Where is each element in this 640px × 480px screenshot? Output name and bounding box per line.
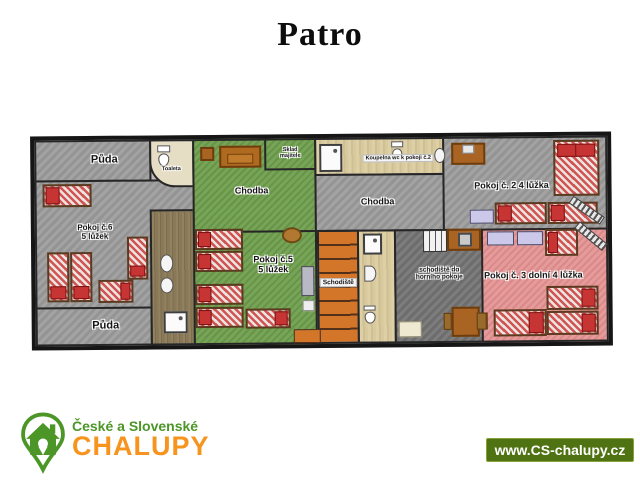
label-puda-bottom: Půda bbox=[92, 319, 119, 332]
chair-icon bbox=[444, 313, 452, 330]
mirror-icon bbox=[160, 254, 173, 272]
sofa-seat bbox=[227, 154, 254, 164]
page: { "title": "Patro", "plan": { "labels": … bbox=[0, 0, 640, 480]
page-title: Patro bbox=[0, 16, 640, 54]
label-pokoj-3: Pokoj č. 3 dolní 4 lůžka bbox=[484, 270, 583, 281]
label-schodiste-horni: schodiště do horního pokoje bbox=[416, 266, 463, 281]
double-bed bbox=[553, 140, 599, 196]
logo-text: České a Slovenské CHALUPY bbox=[72, 418, 210, 462]
bed bbox=[545, 229, 578, 256]
label-sklad: Sklad majitele bbox=[280, 147, 301, 160]
label-chodba-left: Chodba bbox=[235, 185, 269, 196]
toilet-icon bbox=[157, 145, 170, 152]
table-icon bbox=[200, 147, 214, 161]
side-table bbox=[487, 231, 514, 245]
label-pokoj-5-beds: 5 lůžek bbox=[253, 264, 293, 275]
stair-landing bbox=[294, 329, 321, 343]
label-pokoj-6: Pokoj č.6 5 lůžek bbox=[77, 223, 112, 242]
bed bbox=[495, 202, 547, 224]
website-banner[interactable]: www.CS-chalupy.cz bbox=[486, 438, 634, 462]
bed bbox=[195, 229, 243, 250]
toilet-icon bbox=[391, 141, 403, 147]
sink-icon bbox=[458, 233, 472, 247]
bed bbox=[127, 237, 148, 280]
dining-table-icon bbox=[452, 307, 480, 337]
footer-logo: České a Slovenské CHALUPY bbox=[20, 408, 240, 474]
logo-text-line2: CHALUPY bbox=[72, 431, 210, 462]
shower-icon bbox=[319, 144, 342, 172]
bed-pillow bbox=[275, 311, 288, 325]
bed bbox=[98, 280, 133, 303]
label-chodba-mid: Chodba bbox=[361, 196, 395, 207]
chair-icon bbox=[477, 313, 487, 330]
bed bbox=[42, 184, 91, 207]
bed-pillow bbox=[498, 205, 513, 221]
bed-pillow bbox=[581, 314, 596, 332]
bed-pillow bbox=[581, 289, 596, 307]
sink-icon bbox=[434, 148, 445, 163]
bed bbox=[195, 251, 243, 272]
sink-icon bbox=[164, 311, 188, 333]
bed-pillow bbox=[551, 205, 565, 221]
floor-plan: Půda Toaleta Pokoj č.6 5 lůžek Půda Chod… bbox=[30, 131, 613, 350]
door bbox=[303, 300, 315, 311]
label-koupelna: Koupelna wc k pokoji č.2 bbox=[363, 154, 434, 163]
bed-pillow bbox=[46, 187, 60, 204]
bed-pillow bbox=[198, 232, 212, 247]
bed bbox=[547, 311, 599, 335]
bed bbox=[246, 308, 291, 328]
side-table bbox=[470, 209, 494, 223]
mat bbox=[399, 321, 422, 337]
bed-pillow bbox=[548, 232, 558, 253]
bed bbox=[494, 309, 547, 336]
bed-pillow bbox=[198, 287, 212, 302]
bed-pillow bbox=[130, 265, 145, 276]
label-pokoj-6-beds: 5 lůžek bbox=[77, 232, 112, 241]
bed-pillow bbox=[575, 144, 595, 157]
label-pokoj-2: Pokoj č. 2 4 lůžka bbox=[474, 180, 549, 191]
bed bbox=[70, 252, 92, 302]
bed bbox=[47, 252, 69, 302]
side-table bbox=[517, 231, 543, 245]
label-pokoj-5: Pokoj č.5 5 lůžek bbox=[253, 254, 293, 275]
bed bbox=[546, 286, 598, 310]
basin-icon bbox=[364, 266, 376, 282]
mirror-icon bbox=[160, 277, 173, 293]
label-toaleta: Toaleta bbox=[162, 166, 181, 172]
label-schodiste-horni-line2: horního pokoje bbox=[416, 274, 463, 282]
label-puda-top: Půda bbox=[91, 153, 118, 166]
label-schodiste: Schodiště bbox=[320, 278, 357, 288]
bed-pillow bbox=[199, 310, 213, 325]
label-sklad-line2: majitele bbox=[280, 153, 301, 159]
bed-pillow bbox=[198, 254, 212, 269]
sofa-icon bbox=[219, 146, 261, 168]
logo-pin-icon bbox=[20, 410, 66, 474]
toilet-icon bbox=[364, 306, 376, 311]
bed-pillow bbox=[73, 286, 89, 299]
chair-icon bbox=[282, 227, 302, 243]
bed-pillow bbox=[120, 283, 130, 300]
wardrobe bbox=[301, 266, 314, 296]
sink-icon bbox=[363, 233, 382, 254]
bed bbox=[195, 284, 243, 305]
bed-pillow bbox=[50, 286, 66, 299]
desk-item bbox=[462, 145, 474, 154]
stairs-up-icon bbox=[423, 230, 447, 252]
bed bbox=[196, 307, 244, 328]
bed-pillow bbox=[529, 312, 544, 333]
